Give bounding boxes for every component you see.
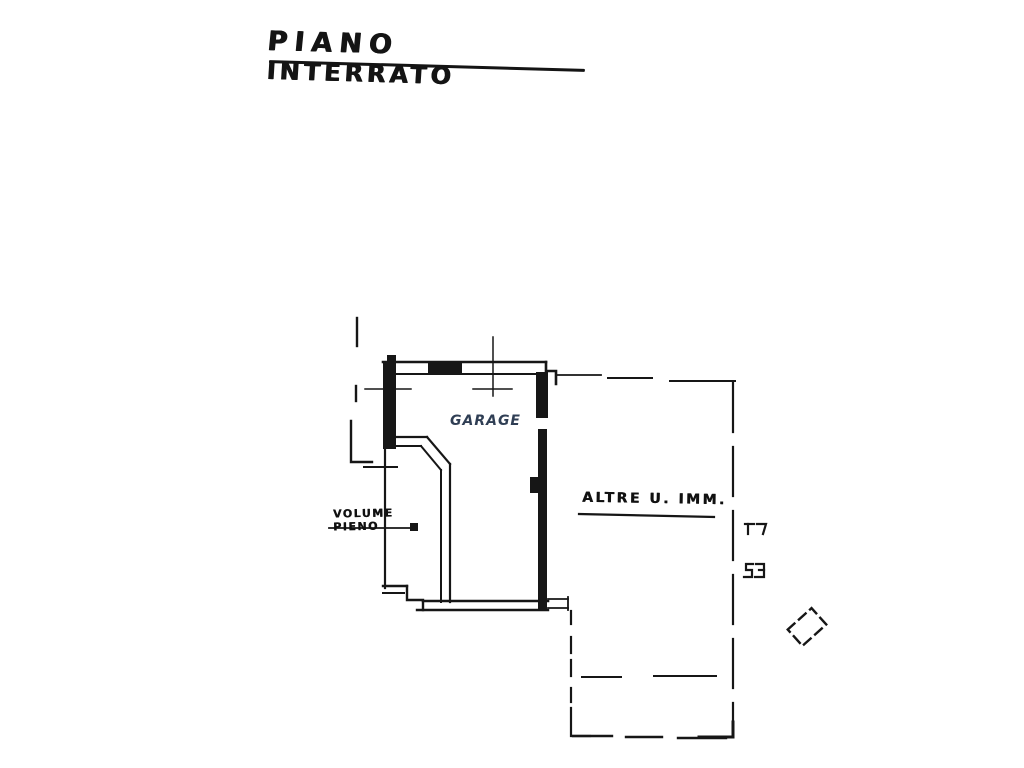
wall-right-upper [536,372,548,418]
volume-pieno-label: VOLUME PIENO [333,506,394,533]
garage-outline [383,355,601,610]
pillar-dashed-rect [788,608,827,646]
floorplan-drawing [0,0,1024,768]
wall-right-lower [538,429,547,610]
bracket-mark-upper [745,524,766,534]
adjacent-units-boundary [571,378,735,738]
wall-fill-top [428,362,462,374]
leader-dot [410,523,418,531]
survey-cross-top [473,337,512,396]
room-label-garage: GARAGE [450,413,521,429]
other-units-label: ALTRE U. IMM. [582,490,727,509]
altre-underline [579,514,714,517]
wall-pilaster [530,477,541,493]
bracket-mark-lower [744,564,764,577]
volume-pieno-line2: PIENO [333,519,394,533]
interior-partition [393,437,450,602]
volume-pieno-line1: VOLUME [333,506,394,520]
